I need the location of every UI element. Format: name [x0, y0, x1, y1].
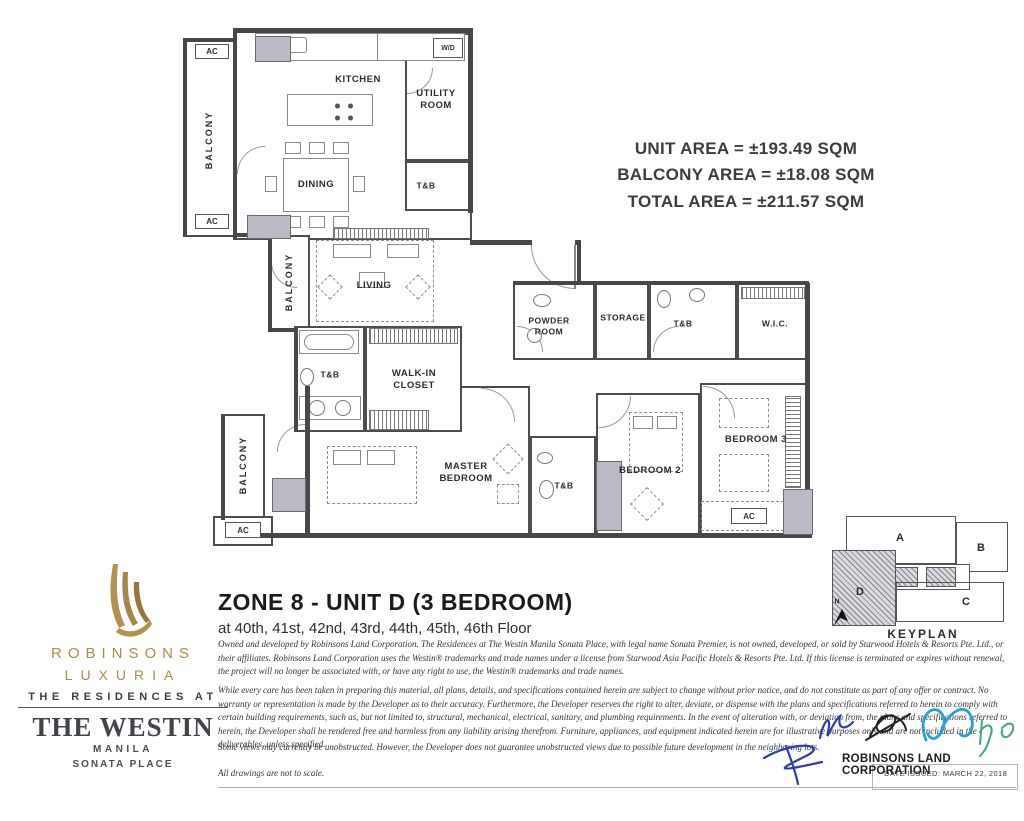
- cooktop-icon: [329, 98, 355, 122]
- counter-divider: [377, 33, 378, 61]
- label-balcony: BALCONY: [204, 111, 214, 170]
- ac-unit-label: AC: [195, 44, 229, 59]
- pillow-icon: [633, 416, 653, 429]
- wall: [294, 328, 298, 432]
- column: [255, 36, 291, 62]
- wall: [268, 235, 272, 332]
- sofa-icon: [333, 244, 371, 258]
- label-tnb: T&B: [674, 319, 693, 330]
- sink-icon: [537, 452, 553, 464]
- sliding-partition: [333, 228, 429, 239]
- wardrobe-icon: [369, 410, 429, 430]
- label-kitchen: KITCHEN: [335, 74, 381, 86]
- column: [272, 478, 306, 512]
- label-master-bedroom: MASTER BEDROOM: [439, 461, 492, 485]
- keyplan-label-c: C: [962, 596, 970, 608]
- washer-dryer-label: W/D: [433, 38, 463, 58]
- dining-chair: [309, 142, 325, 154]
- label-tnb: T&B: [555, 481, 574, 492]
- wall: [221, 414, 225, 520]
- sink-icon: [689, 288, 705, 302]
- label-powder-room: POWDER ROOM: [528, 315, 569, 336]
- wall: [183, 38, 237, 42]
- property-text: SONATA PLACE: [18, 759, 228, 770]
- keyplan: A B C D N KEYPLAN: [830, 506, 1016, 648]
- toilet-icon: [300, 368, 314, 386]
- pillow-icon: [333, 450, 361, 465]
- toilet-icon: [657, 290, 671, 308]
- unit-area-text: UNIT AREA = ±193.49 SQM: [585, 136, 907, 162]
- wardrobe-icon: [369, 328, 458, 344]
- approval-signatures: [758, 700, 1020, 792]
- wall: [261, 533, 812, 538]
- column: [783, 489, 813, 535]
- brand-name-line1: ROBINSONS: [18, 645, 228, 662]
- label-walkin-closet: WALK-IN CLOSET: [392, 368, 436, 392]
- brand-name-line2: LUXURIA: [18, 667, 228, 683]
- toilet-icon: [533, 294, 551, 307]
- dining-chair: [353, 176, 365, 192]
- label-bedroom3: BEDROOM 3: [725, 434, 787, 446]
- wall: [183, 38, 187, 237]
- dining-chair: [285, 142, 301, 154]
- sofa-icon: [387, 244, 419, 258]
- wardrobe-icon: [741, 287, 805, 299]
- city-text: MANILA: [18, 744, 228, 755]
- floors-subtitle: at 40th, 41st, 42nd, 43rd, 44th, 45th, 4…: [218, 620, 532, 637]
- keyplan-title: KEYPLAN: [887, 627, 958, 641]
- label-balcony: BALCONY: [238, 436, 248, 495]
- toilet-icon: [539, 480, 554, 499]
- column: [247, 215, 291, 239]
- north-label: N: [834, 599, 839, 606]
- area-summary: UNIT AREA = ±193.49 SQM BALCONY AREA = ±…: [585, 136, 907, 215]
- bed-icon: [719, 454, 769, 492]
- dining-chair: [333, 216, 349, 228]
- keyplan-unit-c: [896, 582, 1004, 622]
- wall: [513, 281, 809, 285]
- sink-icon: [335, 400, 351, 416]
- keyplan-label-a: A: [896, 532, 904, 544]
- total-area-text: TOTAL AREA = ±211.57 SQM: [585, 189, 907, 215]
- legal-para-ownership: Owned and developed by Robinsons Land Co…: [218, 638, 1013, 679]
- pillow-icon: [657, 416, 677, 429]
- wall: [233, 28, 237, 238]
- unit-title: ZONE 8 - UNIT D (3 BEDROOM): [218, 589, 573, 616]
- label-dining: DINING: [298, 179, 334, 191]
- ac-unit-label: AC: [225, 522, 261, 538]
- label-utility-room: UTILITY ROOM: [416, 88, 455, 112]
- floor-plan: KITCHEN DINING UTILITY ROOM T&B BALCONY …: [183, 28, 822, 547]
- legal-para-scale: All drawings are not to scale.: [218, 767, 618, 781]
- floorplan-sheet: KITCHEN DINING UTILITY ROOM T&B BALCONY …: [0, 0, 1024, 821]
- dining-chair: [265, 176, 277, 192]
- label-tnb: T&B: [321, 370, 340, 381]
- door-swing: [277, 424, 305, 452]
- wall: [237, 28, 472, 33]
- brand-block: ROBINSONS LUXURIA THE RESIDENCES AT THE …: [15, 560, 231, 785]
- wall: [305, 386, 310, 538]
- keyplan-label-b: B: [977, 542, 985, 554]
- room-utility-tnb: [405, 161, 470, 211]
- wall: [468, 28, 473, 213]
- label-balcony: BALCONY: [284, 253, 294, 312]
- dining-chair: [333, 142, 349, 154]
- wardrobe-icon: [785, 396, 801, 488]
- pillow-icon: [367, 450, 395, 465]
- wall: [470, 240, 532, 245]
- label-storage: STORAGE: [600, 313, 645, 324]
- robinsons-luxuria-logo-icon: [89, 564, 153, 640]
- bathtub-basin: [304, 334, 354, 350]
- ac-unit-label: AC: [195, 214, 229, 229]
- wall: [577, 240, 581, 285]
- hotel-name: THE WESTIN: [18, 712, 228, 743]
- label-bedroom2: BEDROOM 2: [619, 465, 681, 477]
- label-wic: W.I.C.: [762, 319, 788, 330]
- sink-icon: [309, 400, 325, 416]
- balcony-area-text: BALCONY AREA = ±18.08 SQM: [585, 162, 907, 188]
- dining-chair: [309, 216, 325, 228]
- keyplan-label-d: D: [856, 586, 864, 598]
- label-tnb: T&B: [417, 181, 436, 192]
- label-living: LIVING: [357, 280, 392, 292]
- residences-at-text: THE RESIDENCES AT: [18, 691, 228, 703]
- north-arrow-icon: [830, 606, 852, 630]
- brand-divider: [18, 707, 228, 708]
- ac-unit-label: AC: [731, 508, 767, 524]
- chair-icon: [497, 484, 519, 504]
